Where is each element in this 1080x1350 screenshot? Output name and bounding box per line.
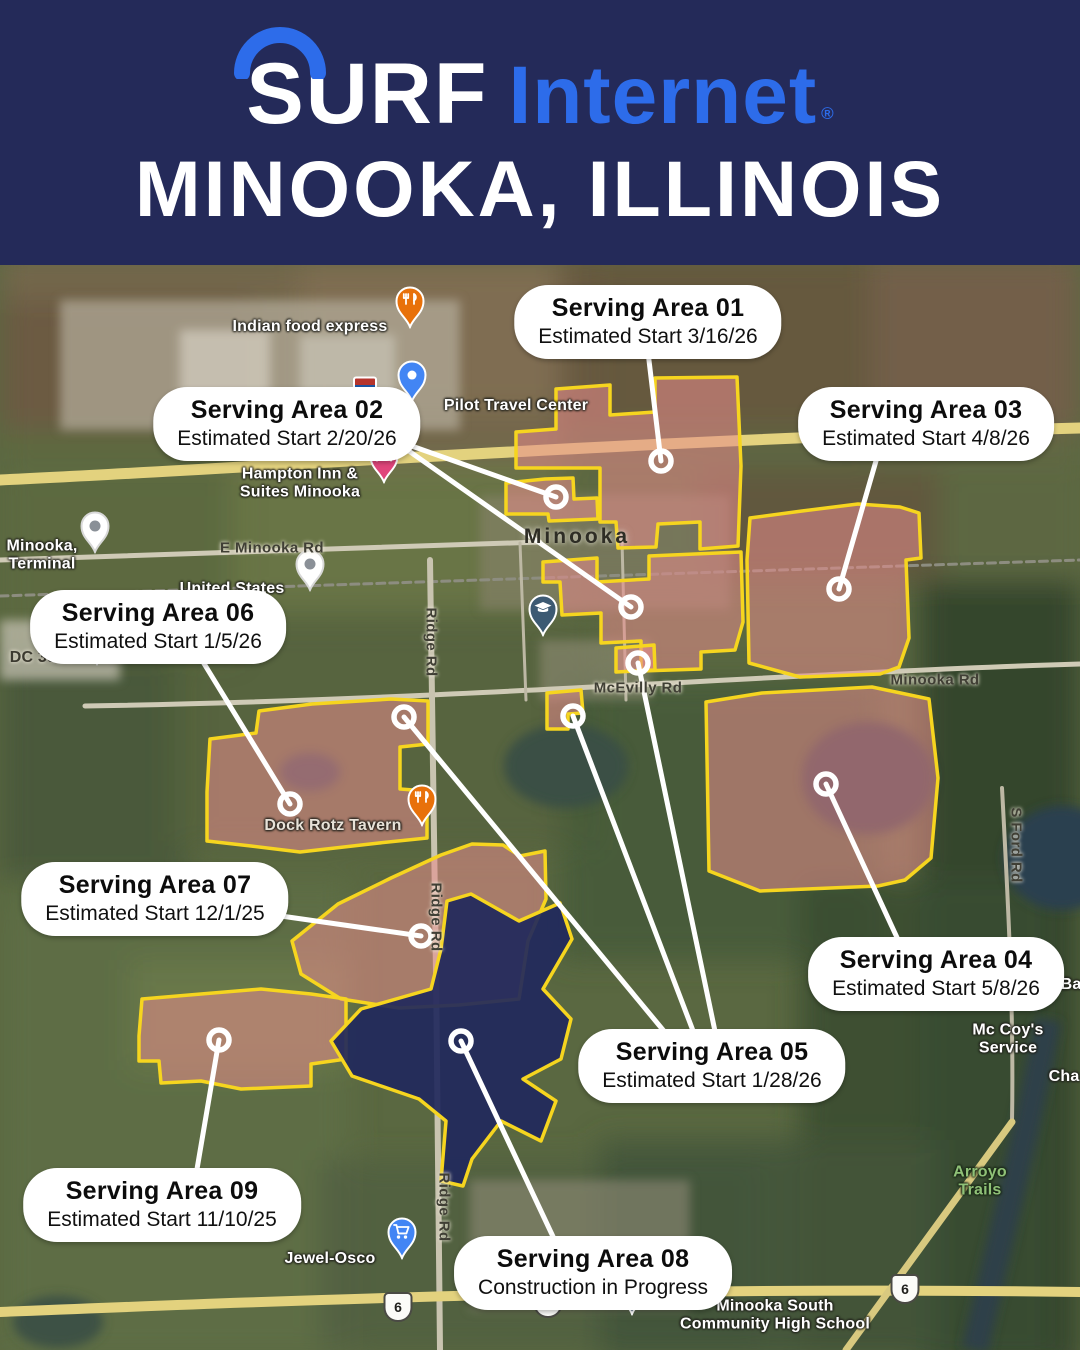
serving-area-status: Construction in Progress [478,1275,708,1300]
serving-area-name: Serving Area 08 [478,1245,708,1274]
surf-internet-logo: SURF Internet ® [246,51,833,137]
serving-area-04-pill: Serving Area 04Estimated Start 5/8/26 [808,937,1064,1011]
serving-area-name: Serving Area 07 [45,871,264,900]
serving-area-03-polygon [747,504,921,677]
header-banner: SURF Internet ® MINOOKA, ILLINOIS [0,0,1080,265]
logo-wave-arc-icon [232,21,328,79]
serving-area-05-pill: Serving Area 05Estimated Start 1/28/26 [578,1029,845,1103]
serving-area-03-pill: Serving Area 03Estimated Start 4/8/26 [798,387,1054,461]
logo-internet-text: Internet [508,55,817,137]
serving-area-09-pill: Serving Area 09Estimated Start 11/10/25 [23,1168,301,1242]
serving-area-status: Estimated Start 1/5/26 [54,629,262,654]
registered-trademark-icon: ® [821,104,834,124]
serving-area-name: Serving Area 03 [822,396,1030,425]
serving-area-07-pill: Serving Area 07Estimated Start 12/1/25 [21,862,288,936]
serving-area-status: Estimated Start 5/8/26 [832,976,1040,1001]
serving-area-status: Estimated Start 11/10/25 [47,1207,277,1232]
serving-area-02-pill: Serving Area 02Estimated Start 2/20/26 [153,387,420,461]
serving-area-name: Serving Area 01 [538,294,757,323]
serving-area-status: Estimated Start 2/20/26 [177,426,396,451]
serving-area-name: Serving Area 09 [47,1177,277,1206]
serving-area-name: Serving Area 05 [602,1038,821,1067]
logo-surf-text: SURF [246,51,488,137]
serving-area-name: Serving Area 02 [177,396,396,425]
serving-area-04-polygon [706,687,938,891]
serving-area-status: Estimated Start 1/28/26 [602,1068,821,1093]
serving-area-06-pill: Serving Area 06Estimated Start 1/5/26 [30,590,286,664]
page-title: MINOOKA, ILLINOIS [135,149,945,228]
serving-area-01-pill: Serving Area 01Estimated Start 3/16/26 [514,285,781,359]
serving-area-name: Serving Area 06 [54,599,262,628]
serving-area-08-pill: Serving Area 08Construction in Progress [454,1236,732,1310]
minooka-map-graphic: Indian food expressPilot Travel CenterHa… [0,0,1080,1350]
serving-area-name: Serving Area 04 [832,946,1040,975]
serving-area-status: Estimated Start 3/16/26 [538,324,757,349]
serving-area-status: Estimated Start 4/8/26 [822,426,1030,451]
serving-area-status: Estimated Start 12/1/25 [45,901,264,926]
